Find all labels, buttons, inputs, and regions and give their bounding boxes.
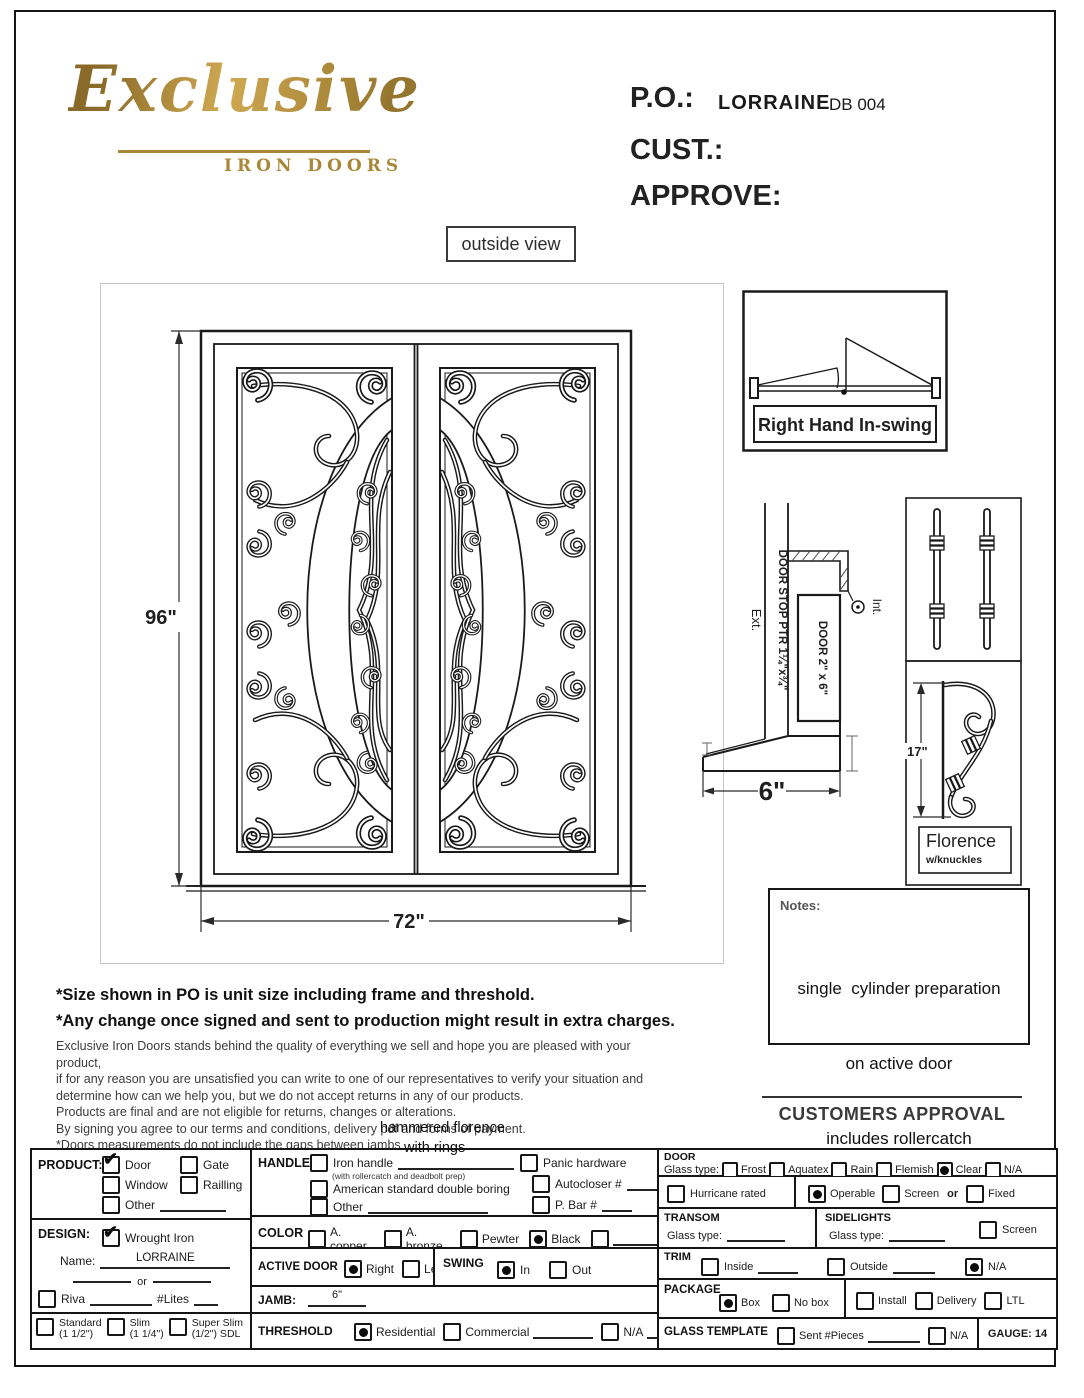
- disclaimer-line: determine how can we help you, but we do…: [56, 1088, 676, 1105]
- handwritten-handle-note[interactable]: hammered florence: [380, 1120, 505, 1136]
- glass-na-checkbox[interactable]: [985, 1162, 1001, 1178]
- threshold-label: THRESHOLD: [258, 1324, 333, 1338]
- notes-box: Notes: single cylinder preparation on ac…: [768, 888, 1030, 1045]
- transom-glass-blank[interactable]: [727, 1229, 785, 1242]
- glass-template-na-checkbox[interactable]: [928, 1327, 946, 1345]
- cust-label: CUST.:: [630, 134, 723, 167]
- ltl-checkbox[interactable]: [984, 1292, 1002, 1310]
- door-glass-type-label: Glass type:: [664, 1164, 719, 1176]
- swing-label: Right Hand In-swing: [758, 415, 932, 435]
- design-riva-label: Riva: [61, 1292, 85, 1306]
- swing-label: SWING: [443, 1256, 484, 1270]
- threshold-commercial-checkbox[interactable]: [443, 1323, 461, 1341]
- width-dimension: 72": [393, 911, 425, 933]
- glass-template-sent-label: Sent #Pieces: [799, 1330, 864, 1342]
- handle-american-label: American standard double boring: [333, 1182, 510, 1196]
- swing-out-label: Out: [572, 1263, 591, 1277]
- package-box-checkbox[interactable]: [719, 1294, 737, 1312]
- swing-in-label: In: [520, 1263, 530, 1277]
- sidelights-label: SIDELIGHTS: [825, 1212, 891, 1224]
- trim-na-label: N/A: [988, 1261, 1006, 1273]
- glass-rain-label: Rain: [850, 1164, 873, 1176]
- handwritten-handle-note[interactable]: with rings: [404, 1140, 465, 1156]
- product-gate-checkbox[interactable]: [180, 1156, 198, 1174]
- size-slim-sub: (1 1/4"): [130, 1328, 164, 1340]
- jamb-section: JAMB: 6": [252, 1287, 659, 1314]
- color-label: COLOR: [258, 1226, 303, 1240]
- trim-label: TRIM: [664, 1251, 691, 1263]
- product-other-blank[interactable]: [160, 1199, 226, 1212]
- jamb-section-drawing: Ext. DOOR STOP PTR 1¼"x¾" DOOR 2" x 6" I…: [700, 495, 890, 835]
- pull-handle-drawing: [930, 509, 994, 649]
- design-lites-blank[interactable]: [194, 1293, 218, 1306]
- product-section: PRODUCT: Door Gate Window Railling Other: [32, 1150, 252, 1220]
- glass-aquatex-checkbox[interactable]: [769, 1162, 785, 1178]
- hurricane-label: Hurricane rated: [690, 1188, 766, 1200]
- color-bronze-checkbox[interactable]: [384, 1230, 402, 1248]
- notes-label: Notes:: [780, 898, 820, 913]
- design-name-label: Name:: [60, 1254, 95, 1268]
- active-door-section: ACTIVE DOOR Right Left: [252, 1249, 435, 1287]
- product-window-checkbox[interactable]: [102, 1176, 120, 1194]
- glass-template-na-label: N/A: [950, 1330, 968, 1342]
- gauge-cell: GAUGE: 14: [979, 1319, 1056, 1348]
- glass-na-label: N/A: [1004, 1164, 1022, 1176]
- handle-autocloser-label: Autocloser #: [555, 1177, 622, 1191]
- handle-other-checkbox[interactable]: [310, 1198, 328, 1216]
- design-label: DESIGN:: [38, 1227, 90, 1241]
- threshold-commercial-blank[interactable]: [533, 1326, 593, 1339]
- door-frame-outer: [201, 331, 631, 886]
- fixed-label: Fixed: [988, 1188, 1015, 1200]
- door-leaf-label: DOOR 2" x 6": [816, 621, 828, 695]
- door-glass-section: DOOR Glass type: Frost Aquatex Rain Flem…: [659, 1150, 1056, 1177]
- sidelights-screen-label: Screen: [1002, 1224, 1037, 1236]
- product-other-checkbox[interactable]: [102, 1196, 120, 1214]
- transom-label: TRANSOM: [664, 1212, 720, 1224]
- hurricane-section: Hurricane rated: [659, 1177, 796, 1209]
- trim-outside-blank[interactable]: [893, 1261, 935, 1274]
- brand-logo: Exclusive: [68, 52, 421, 127]
- glass-template-section: GLASS TEMPLATE Sent #Pieces N/A: [659, 1319, 979, 1348]
- handle-other-label: Other: [333, 1200, 363, 1214]
- glass-frost-label: Frost: [741, 1164, 766, 1176]
- color-section: COLOR A. copper A. bronze Pewter Black: [252, 1217, 659, 1249]
- glass-aquatex-label: Aquatex: [788, 1164, 828, 1176]
- trim-outside-checkbox[interactable]: [827, 1258, 845, 1276]
- threshold-na-label: N/A: [623, 1325, 643, 1339]
- ext-label: Ext.: [749, 609, 764, 631]
- handle-pbar-checkbox[interactable]: [532, 1196, 550, 1214]
- active-door-right-label: Right: [366, 1262, 394, 1276]
- height-dimension: 96": [145, 607, 177, 629]
- po-number-value: DB 004: [829, 95, 886, 115]
- or-label: or: [947, 1188, 958, 1200]
- package-nobox-checkbox[interactable]: [772, 1294, 790, 1312]
- door-frame-inner: [214, 344, 618, 874]
- handle-detail: w/knuckles: [925, 854, 982, 866]
- delivery-label: Delivery: [937, 1295, 977, 1307]
- product-window-label: Window: [125, 1178, 168, 1192]
- design-wrought-iron-label: Wrought Iron: [125, 1231, 194, 1245]
- glass-clear-checkbox[interactable]: [937, 1162, 953, 1178]
- color-pewter-checkbox[interactable]: [460, 1230, 478, 1248]
- screen-checkbox[interactable]: [882, 1185, 900, 1203]
- handle-pbar-blank[interactable]: [602, 1199, 632, 1212]
- size-superslim-sub: (1/2") SDL: [192, 1328, 241, 1340]
- trim-section: TRIM Inside Outside N/A: [659, 1249, 1056, 1280]
- operable-checkbox[interactable]: [808, 1185, 826, 1203]
- logo-underline: [118, 150, 370, 153]
- florence-handle-drawing: [943, 681, 994, 819]
- customers-approval-signature[interactable]: CUSTOMERS APPROVAL: [762, 1096, 1022, 1125]
- design-or-label: or: [137, 1276, 147, 1288]
- product-gate-label: Gate: [203, 1158, 229, 1172]
- trim-inside-blank[interactable]: [758, 1261, 798, 1274]
- install-label: Install: [878, 1295, 907, 1307]
- product-other-label: Other: [125, 1198, 155, 1212]
- size-standard-checkbox[interactable]: [36, 1318, 54, 1336]
- active-door-right-checkbox[interactable]: [344, 1260, 362, 1278]
- disclaimer-line: Products are final and are not eligible …: [56, 1104, 676, 1121]
- approve-label: APPROVE:: [630, 180, 781, 213]
- jamb-value[interactable]: 6": [308, 1289, 366, 1307]
- handle-autocloser-checkbox[interactable]: [532, 1175, 550, 1193]
- trim-inside-label: Inside: [724, 1261, 753, 1273]
- int-label: Int.: [870, 599, 884, 616]
- trim-outside-label: Outside: [850, 1261, 888, 1273]
- swing-diagram: Right Hand In-swing: [742, 290, 948, 452]
- install-checkbox[interactable]: [856, 1292, 874, 1310]
- product-railling-checkbox[interactable]: [180, 1176, 198, 1194]
- glass-rain-checkbox[interactable]: [831, 1162, 847, 1178]
- handle-height-dimension: 17": [907, 744, 928, 759]
- ltl-label: LTL: [1006, 1295, 1024, 1307]
- threshold-na-checkbox[interactable]: [601, 1323, 619, 1341]
- disclaimer-line: Exclusive Iron Doors stands behind the q…: [56, 1038, 676, 1071]
- handle-drawings: 17" Florence w/knuckles: [905, 497, 1022, 887]
- design-riva-checkbox[interactable]: [38, 1290, 56, 1308]
- color-black-label: Black: [551, 1232, 580, 1246]
- handle-name: Florence: [926, 831, 996, 851]
- design-lites-label: #Lites: [157, 1292, 189, 1306]
- handle-other-blank[interactable]: [368, 1201, 488, 1214]
- design-name-value[interactable]: LORRAINE: [100, 1252, 230, 1269]
- threshold-commercial-label: Commercial: [465, 1325, 529, 1339]
- threshold-residential-checkbox[interactable]: [354, 1323, 372, 1341]
- sidelights-glass-blank[interactable]: [889, 1229, 945, 1242]
- sdl-size-section: Standard(1 1/2") Slim(1 1/4") Super Slim…: [32, 1314, 252, 1348]
- gauge-value: GAUGE: 14: [988, 1328, 1047, 1340]
- operable-label: Operable: [830, 1188, 875, 1200]
- package-section: PACKAGE Box No box: [659, 1280, 846, 1319]
- sidelights-section: SIDELIGHTS Glass type: Screen: [817, 1209, 1056, 1249]
- swing-in-checkbox[interactable]: [497, 1261, 515, 1279]
- handle-autocloser-blank[interactable]: [627, 1178, 657, 1191]
- handle-iron-checkbox[interactable]: [310, 1154, 328, 1172]
- screen-label: Screen: [904, 1188, 939, 1200]
- order-sheet: Exclusive IRON DOORS P.O.: LORRAINE DB 0…: [0, 0, 1084, 1398]
- delivery-checkbox[interactable]: [915, 1292, 933, 1310]
- disclaimer-line: By signing you agree to our terms and co…: [56, 1121, 676, 1138]
- disclaimer-bold-line: *Size shown in PO is unit size including…: [56, 986, 676, 1005]
- disclaimer-block: *Size shown in PO is unit size including…: [56, 986, 676, 1154]
- order-form-table: PRODUCT: Door Gate Window Railling Other…: [30, 1148, 1058, 1350]
- size-slim-checkbox[interactable]: [107, 1318, 125, 1336]
- trim-na-checkbox[interactable]: [965, 1258, 983, 1276]
- delivery-section: Install Delivery LTL: [846, 1280, 1056, 1319]
- size-standard-sub: (1 1/2"): [59, 1328, 93, 1340]
- notes-line: single cylinder preparation: [770, 976, 1028, 1001]
- product-label: PRODUCT:: [38, 1158, 103, 1172]
- jamb-width-dimension: 6": [759, 776, 786, 806]
- glass-frost-checkbox[interactable]: [722, 1162, 738, 1178]
- threshold-residential-label: Residential: [376, 1325, 435, 1339]
- fixed-checkbox[interactable]: [966, 1185, 984, 1203]
- handle-panic-label: Panic hardware: [543, 1156, 626, 1170]
- swing-section: SWING In Out: [435, 1249, 659, 1287]
- notes-line: on active door: [770, 1051, 1028, 1076]
- glass-template-sent-checkbox[interactable]: [777, 1327, 795, 1345]
- handle-iron-label: Iron handle: [333, 1156, 393, 1170]
- hurricane-checkbox[interactable]: [667, 1185, 685, 1203]
- color-black-checkbox[interactable]: [529, 1230, 547, 1248]
- swing-out-checkbox[interactable]: [549, 1261, 567, 1279]
- package-label: PACKAGE: [664, 1284, 721, 1296]
- active-door-label: ACTIVE DOOR: [258, 1261, 338, 1273]
- door-stop-label: DOOR STOP PTR 1¼"x¾": [776, 550, 788, 691]
- size-superslim-checkbox[interactable]: [169, 1318, 187, 1336]
- disclaimer-line: if for any reason you are unsatisfied yo…: [56, 1071, 676, 1088]
- glass-flemish-checkbox[interactable]: [876, 1162, 892, 1178]
- package-box-label: Box: [741, 1297, 760, 1309]
- brand-logo-subtitle: IRON DOORS: [224, 156, 403, 176]
- handle-label: HANDLE: [258, 1156, 310, 1170]
- glass-template-pieces-blank[interactable]: [868, 1330, 920, 1343]
- disclaimer-bold-line: *Any change once signed and sent to prod…: [56, 1012, 676, 1031]
- product-door-label: Door: [125, 1158, 151, 1172]
- jamb-label: JAMB:: [258, 1293, 296, 1307]
- product-door-checkbox[interactable]: [102, 1156, 120, 1174]
- trim-inside-checkbox[interactable]: [701, 1258, 719, 1276]
- color-other-blank[interactable]: [613, 1233, 657, 1246]
- color-pewter-label: Pewter: [482, 1232, 519, 1246]
- handle-american-checkbox[interactable]: [310, 1180, 328, 1198]
- transom-glass-label: Glass type:: [667, 1230, 722, 1242]
- sidelights-screen-checkbox[interactable]: [979, 1221, 997, 1239]
- handle-pbar-label: P. Bar #: [555, 1198, 597, 1212]
- package-nobox-label: No box: [794, 1297, 829, 1309]
- design-wrought-iron-checkbox[interactable]: [102, 1229, 120, 1247]
- door-elevation-drawing: 96" 72": [100, 283, 724, 964]
- handle-panic-checkbox[interactable]: [520, 1154, 538, 1172]
- threshold-section: THRESHOLD Residential Commercial N/A: [252, 1314, 659, 1348]
- glass-flemish-label: Flemish: [895, 1164, 934, 1176]
- door-mode-section: Operable Screen or Fixed: [796, 1177, 1056, 1209]
- color-other-checkbox[interactable]: [591, 1230, 609, 1248]
- design-riva-blank[interactable]: [90, 1293, 152, 1306]
- product-railling-label: Railling: [203, 1178, 242, 1192]
- active-door-left-checkbox[interactable]: [402, 1260, 420, 1278]
- glass-clear-label: Clear: [956, 1164, 982, 1176]
- design-section: DESIGN: Wrought Iron Name: LORRAINE or R…: [32, 1220, 252, 1314]
- sidelights-glass-label: Glass type:: [829, 1230, 884, 1242]
- handle-iron-blank[interactable]: [398, 1157, 514, 1170]
- po-name-value: LORRAINE: [718, 92, 830, 115]
- color-copper-checkbox[interactable]: [308, 1230, 326, 1248]
- po-label: P.O.:: [630, 82, 694, 115]
- transom-section: TRANSOM Glass type:: [659, 1209, 817, 1249]
- handle-section: HANDLE Iron handle (with rollercatch and…: [252, 1150, 659, 1217]
- outside-view-tag: outside view: [446, 226, 576, 262]
- glass-template-label: GLASS TEMPLATE: [664, 1326, 768, 1338]
